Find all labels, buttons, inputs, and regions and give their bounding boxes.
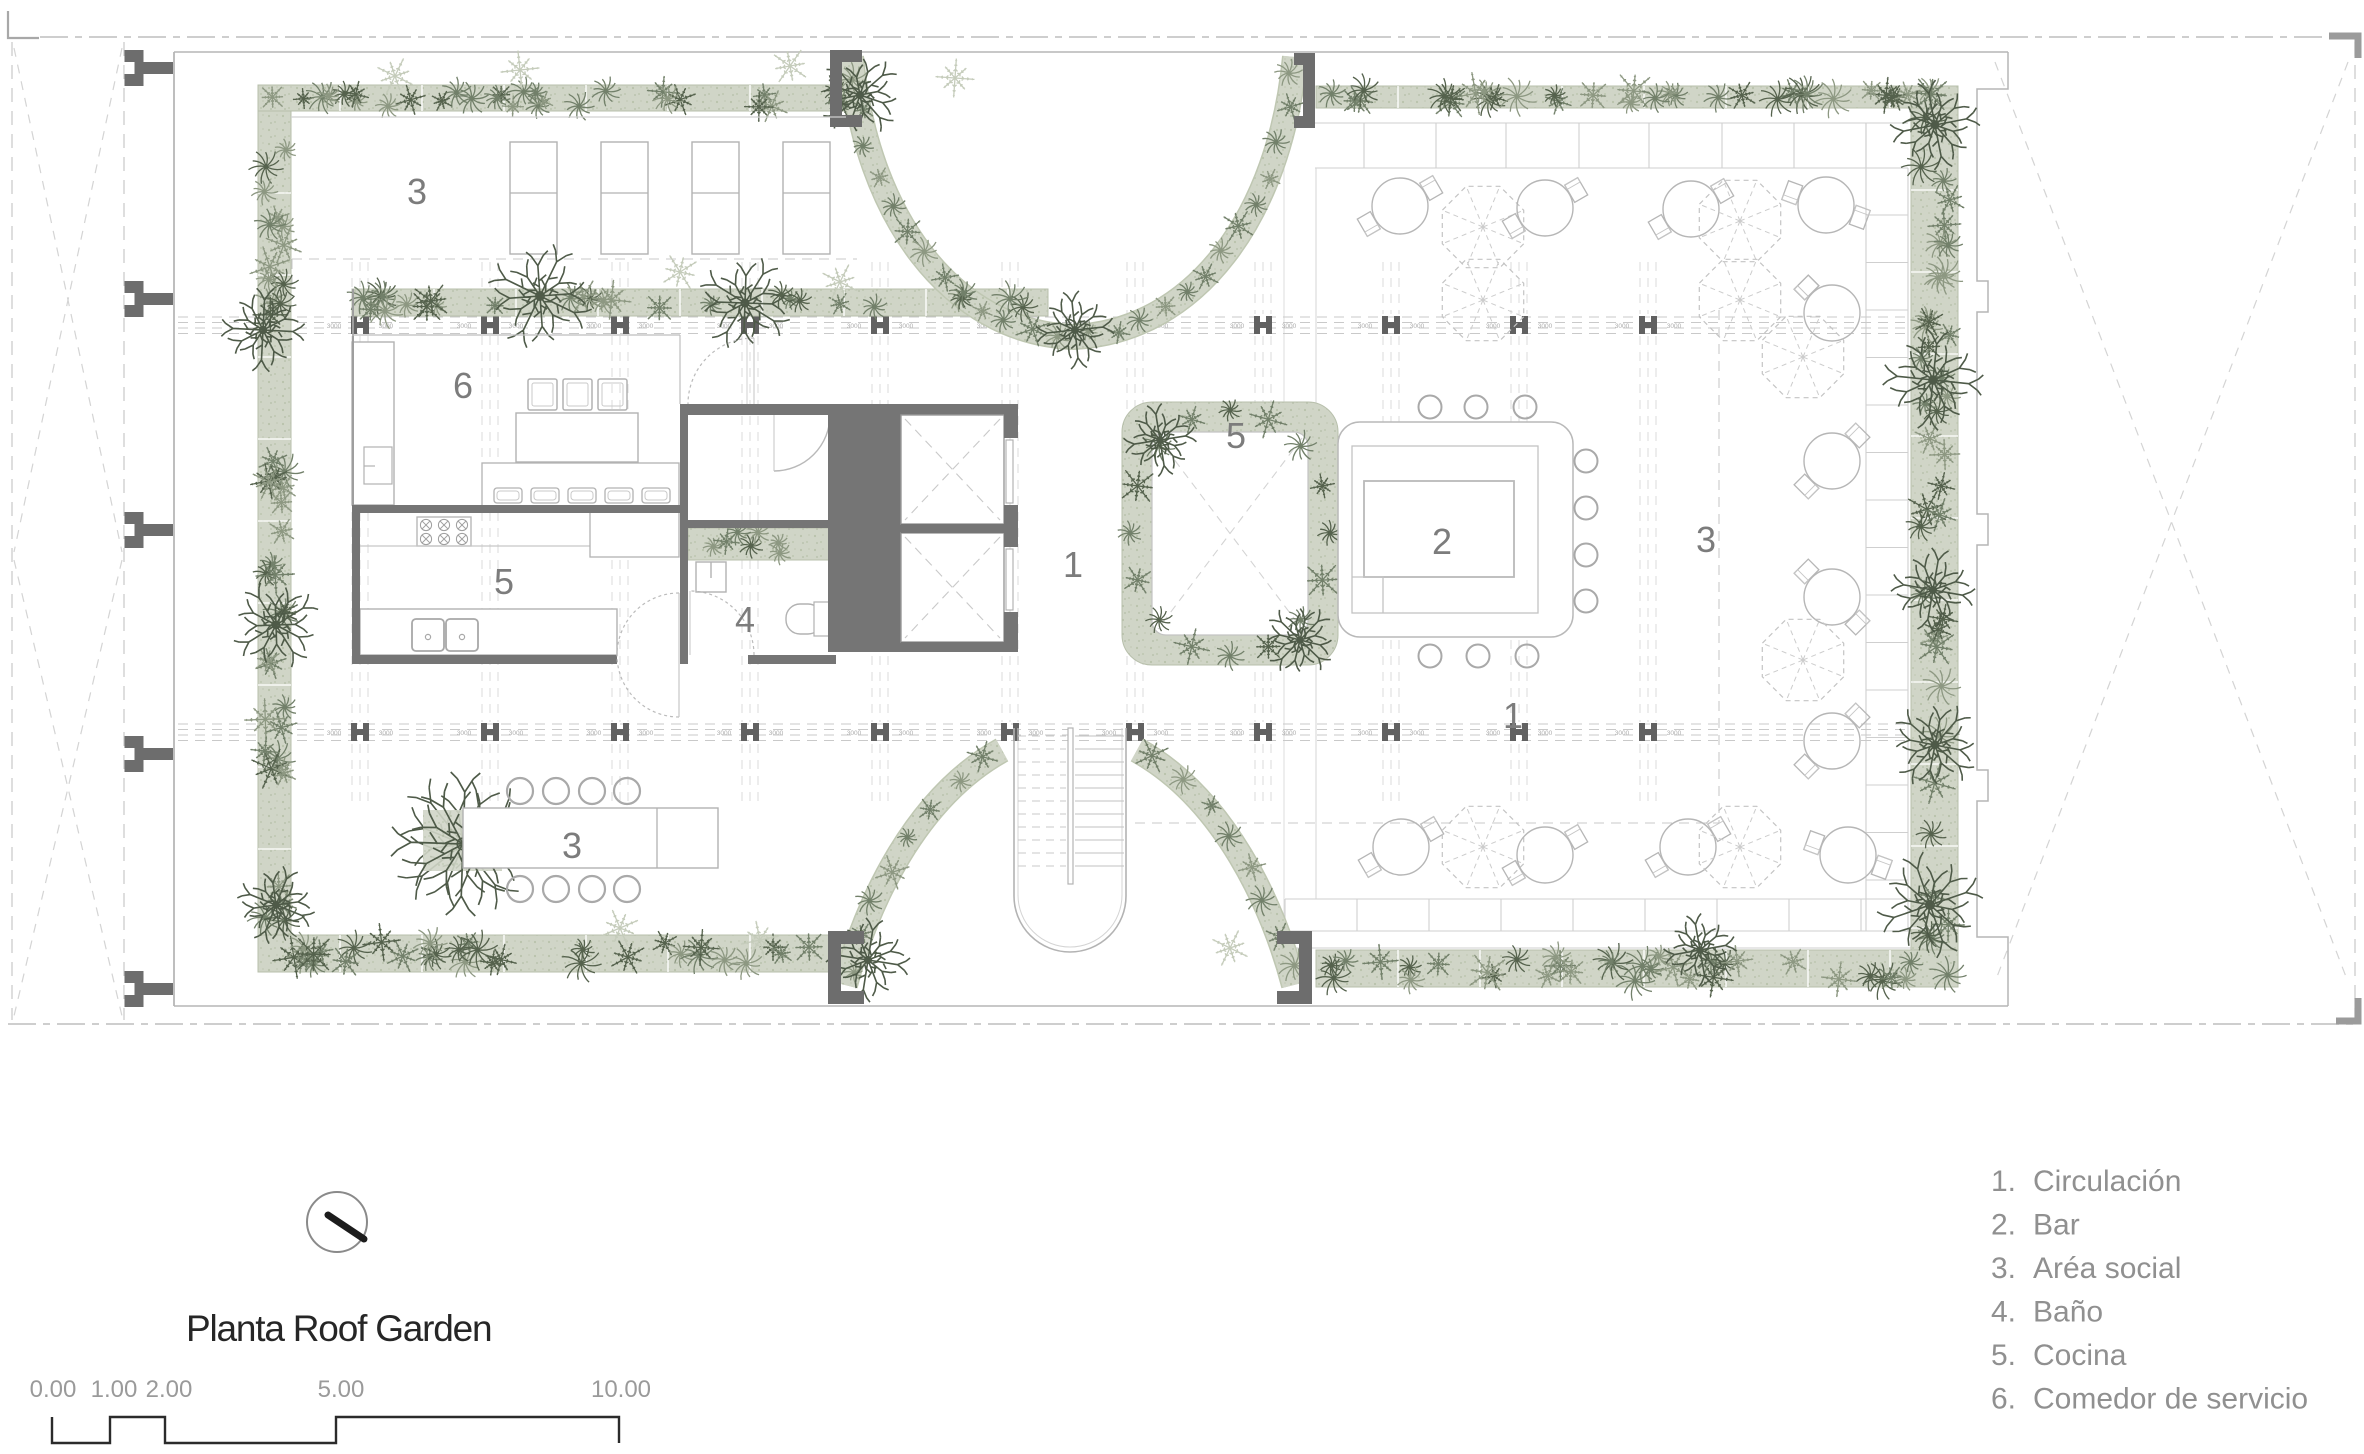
svg-text:3000: 3000 bbox=[457, 730, 472, 737]
svg-text:Circulación: Circulación bbox=[2033, 1165, 2181, 1198]
svg-text:3000: 3000 bbox=[1538, 730, 1553, 737]
svg-text:3000: 3000 bbox=[899, 323, 914, 330]
svg-text:Baño: Baño bbox=[2033, 1296, 2103, 1329]
svg-text:Aréa social: Aréa social bbox=[2033, 1252, 2181, 1285]
svg-text:1: 1 bbox=[1503, 695, 1523, 736]
svg-text:0.00: 0.00 bbox=[30, 1376, 77, 1403]
svg-text:1: 1 bbox=[1063, 544, 1083, 585]
svg-text:10.00: 10.00 bbox=[591, 1376, 651, 1403]
svg-text:3000: 3000 bbox=[899, 730, 914, 737]
svg-text:3000: 3000 bbox=[1358, 730, 1373, 737]
svg-text:3000: 3000 bbox=[327, 730, 342, 737]
svg-text:Cocina: Cocina bbox=[2033, 1339, 2127, 1372]
svg-text:3: 3 bbox=[562, 825, 582, 866]
svg-text:4.: 4. bbox=[1991, 1296, 2016, 1329]
svg-text:3000: 3000 bbox=[1282, 730, 1297, 737]
svg-text:3000: 3000 bbox=[1230, 730, 1245, 737]
svg-text:3000: 3000 bbox=[1282, 323, 1297, 330]
svg-text:3000: 3000 bbox=[1486, 730, 1501, 737]
svg-text:3000: 3000 bbox=[1410, 730, 1425, 737]
svg-text:5.00: 5.00 bbox=[318, 1376, 365, 1403]
svg-text:2.: 2. bbox=[1991, 1209, 2016, 1242]
svg-text:3000: 3000 bbox=[639, 730, 654, 737]
svg-text:3000: 3000 bbox=[977, 730, 992, 737]
svg-text:3000: 3000 bbox=[587, 323, 602, 330]
svg-text:6: 6 bbox=[453, 365, 473, 406]
svg-text:3000: 3000 bbox=[1230, 323, 1245, 330]
svg-text:5: 5 bbox=[1226, 415, 1246, 456]
svg-text:5.: 5. bbox=[1991, 1339, 2016, 1372]
svg-text:6.: 6. bbox=[1991, 1383, 2016, 1416]
svg-text:3000: 3000 bbox=[717, 730, 732, 737]
svg-text:3: 3 bbox=[407, 171, 427, 212]
svg-text:3.: 3. bbox=[1991, 1252, 2016, 1285]
svg-text:3000: 3000 bbox=[327, 323, 342, 330]
svg-text:3000: 3000 bbox=[1486, 323, 1501, 330]
svg-text:3000: 3000 bbox=[769, 730, 784, 737]
svg-text:3000: 3000 bbox=[639, 323, 654, 330]
svg-text:3000: 3000 bbox=[1615, 323, 1630, 330]
svg-text:3000: 3000 bbox=[1538, 323, 1553, 330]
svg-text:3000: 3000 bbox=[457, 323, 472, 330]
svg-text:3000: 3000 bbox=[847, 730, 862, 737]
svg-text:3: 3 bbox=[1696, 519, 1716, 560]
svg-text:3000: 3000 bbox=[1615, 730, 1630, 737]
svg-text:3000: 3000 bbox=[1667, 323, 1682, 330]
svg-text:3000: 3000 bbox=[1410, 323, 1425, 330]
svg-text:Bar: Bar bbox=[2033, 1209, 2080, 1242]
svg-text:3000: 3000 bbox=[587, 730, 602, 737]
svg-text:3000: 3000 bbox=[847, 323, 862, 330]
svg-text:Planta Roof Garden: Planta Roof Garden bbox=[186, 1308, 491, 1349]
svg-text:Comedor de servicio: Comedor de servicio bbox=[2033, 1383, 2308, 1416]
svg-text:3000: 3000 bbox=[1358, 323, 1373, 330]
svg-text:2: 2 bbox=[1432, 521, 1452, 562]
svg-text:3000: 3000 bbox=[509, 730, 524, 737]
svg-text:5: 5 bbox=[494, 561, 514, 602]
svg-text:1.00: 1.00 bbox=[91, 1376, 138, 1403]
svg-text:2.00: 2.00 bbox=[146, 1376, 193, 1403]
svg-text:3000: 3000 bbox=[1667, 730, 1682, 737]
svg-text:3000: 3000 bbox=[379, 730, 394, 737]
svg-text:1.: 1. bbox=[1991, 1165, 2016, 1198]
svg-text:3000: 3000 bbox=[1154, 730, 1169, 737]
svg-text:4: 4 bbox=[735, 599, 755, 640]
